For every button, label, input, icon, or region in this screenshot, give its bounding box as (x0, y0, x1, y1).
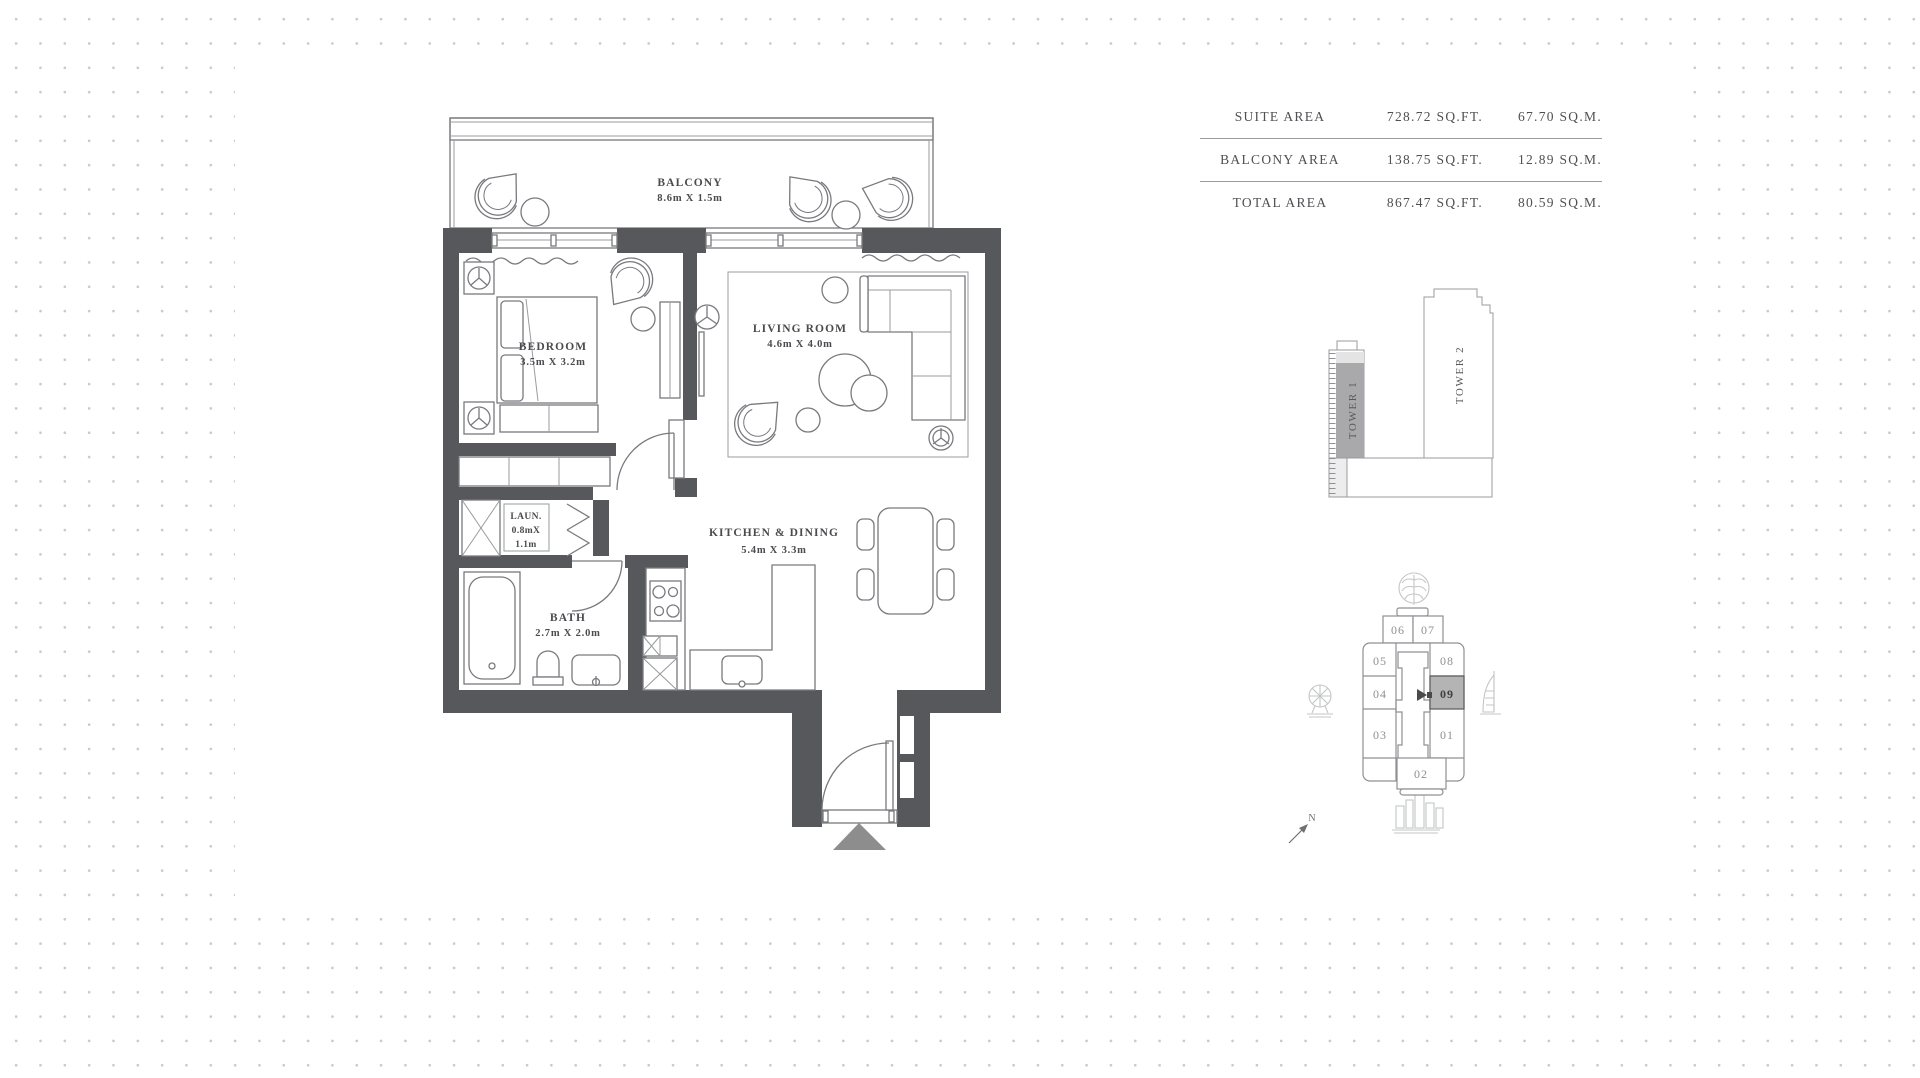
side-table-icon (631, 307, 655, 331)
entry (822, 716, 914, 850)
ferris-wheel-icon (1307, 685, 1333, 717)
palm-island-icon (1399, 573, 1429, 605)
kitchen-label: KITCHEN & DINING (709, 527, 839, 539)
coffee-table-icon (851, 375, 887, 411)
balcony-dims: 8.6m X 1.5m (657, 193, 722, 204)
unit-number: 07 (1421, 623, 1435, 637)
side-table-icon (796, 408, 820, 432)
living-room-label: LIVING ROOM (753, 323, 847, 335)
north-arrow-icon: N (1289, 813, 1316, 843)
sink-icon (722, 656, 762, 684)
unit-number: 02 (1414, 767, 1428, 781)
sofa-arm-icon (860, 276, 868, 332)
balcony-chair-icon (773, 163, 839, 230)
tower1-cap (1337, 341, 1357, 350)
skyline-icon (1392, 795, 1443, 833)
table-row: TOTAL AREA 867.47 SQ.FT. 80.59 SQ.M. (1200, 182, 1602, 224)
bifold-door-icon (567, 504, 589, 556)
podium (1347, 458, 1492, 497)
tower1-upper-floors (1336, 352, 1364, 363)
laundry-label: LAUN. (510, 512, 541, 522)
floor-plan: BALCONY 8.6m X 1.5m (430, 100, 1040, 870)
area-sqft: 138.75 SQ.FT. (1360, 152, 1510, 168)
unit-number: 03 (1373, 728, 1387, 742)
entry-marker-icon (833, 823, 886, 850)
tower2-label: TOWER 2 (1454, 346, 1466, 404)
armchair-icon (726, 387, 793, 454)
kitchen-dining: KITCHEN & DINING 5.4m X 3.3m (643, 508, 954, 690)
toilet-icon (537, 651, 559, 677)
table-row: BALCONY AREA 138.75 SQ.FT. 12.89 SQ.M. (1200, 139, 1602, 182)
balcony: BALCONY 8.6m X 1.5m (450, 118, 933, 230)
threshold (822, 810, 897, 823)
dining-table-icon (878, 508, 933, 614)
balcony-table-icon (832, 201, 860, 229)
tower-2: TOWER 2 (1424, 289, 1493, 458)
bath: BATH 2.7m X 2.0m (464, 561, 622, 686)
area-sqft: 728.72 SQ.FT. (1360, 109, 1510, 125)
unit-number: 01 (1440, 728, 1454, 742)
door-swing-icon (572, 561, 622, 611)
unit-number: 05 (1373, 654, 1387, 668)
bedroom-dims: 3.5m X 3.2m (520, 357, 585, 368)
dining-chair-icon (937, 569, 954, 600)
balcony-chair-icon (855, 168, 919, 226)
unit-number: 08 (1440, 654, 1454, 668)
bath-label: BATH (550, 612, 586, 624)
unit-number-highlighted: 09 (1440, 687, 1454, 701)
unit-number: 04 (1373, 687, 1387, 701)
bedroom-chair-icon (596, 250, 661, 317)
area-sqm: 67.70 SQ.M. (1510, 109, 1602, 125)
area-summary-table: SUITE AREA 728.72 SQ.FT. 67.70 SQ.M. BAL… (1200, 96, 1602, 224)
faucet-icon (739, 681, 745, 687)
north-label: N (1308, 813, 1315, 824)
curtain-icon (862, 255, 960, 261)
living-room: LIVING ROOM 4.6m X 4.0m (695, 255, 968, 457)
dining-chair-icon (937, 519, 954, 550)
tower-diagram: TOWER 1 TOWER 2 (1280, 270, 1540, 510)
laundry: LAUN. 0.8mX 1.1m (462, 500, 589, 556)
key-plan: N 06 07 05 08 04 09 03 01 02 (1270, 555, 1540, 855)
bedroom-label: BEDROOM (519, 341, 587, 353)
balcony-label: BALCONY (657, 177, 722, 189)
unit-number: 06 (1391, 623, 1405, 637)
wardrobe-icon (459, 457, 610, 486)
table-row: SUITE AREA 728.72 SQ.FT. 67.70 SQ.M. (1200, 96, 1602, 139)
floor-plate: 06 07 05 08 04 09 03 01 02 (1363, 608, 1464, 795)
bathtub-icon (464, 572, 520, 684)
area-label: SUITE AREA (1200, 109, 1360, 125)
area-sqft: 867.47 SQ.FT. (1360, 195, 1510, 211)
door-swing-icon (822, 743, 889, 810)
balcony-table-icon (521, 198, 549, 226)
side-table-icon (822, 277, 848, 303)
laundry-dims2: 1.1m (515, 540, 536, 550)
area-label: BALCONY AREA (1200, 152, 1360, 168)
closet-niche (900, 762, 914, 798)
area-sqm: 80.59 SQ.M. (1510, 195, 1602, 211)
closet-niche (900, 716, 914, 754)
tower1-label: TOWER 1 (1347, 381, 1359, 439)
tv-icon (699, 332, 704, 396)
entry-door-leaf (886, 741, 893, 810)
area-sqm: 12.89 SQ.M. (1510, 152, 1602, 168)
laundry-dims1: 0.8mX (512, 526, 541, 536)
bath-dims: 2.7m X 2.0m (535, 628, 600, 639)
living-room-dims: 4.6m X 4.0m (767, 339, 832, 350)
dining-chair-icon (857, 569, 874, 600)
door-swing-icon (617, 433, 674, 490)
area-label: TOTAL AREA (1200, 195, 1360, 211)
kitchen-dims: 5.4m X 3.3m (741, 545, 806, 556)
burj-al-arab-icon (1480, 671, 1501, 714)
dining-chair-icon (857, 519, 874, 550)
door-pocket-icon (669, 420, 684, 478)
